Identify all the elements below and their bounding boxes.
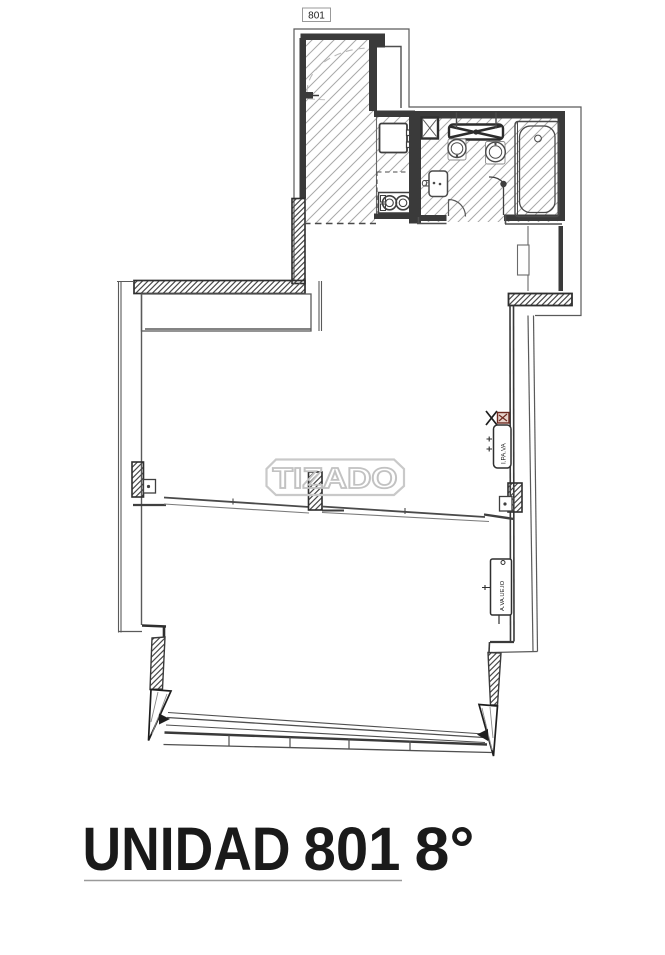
svg-text:I.PA.VA: I.PA.VA [501, 442, 508, 464]
svg-text:8°: 8° [415, 815, 475, 883]
svg-text:801: 801 [308, 11, 325, 22]
svg-text:TIZADO: TIZADO [273, 463, 398, 495]
svg-text:A.VA.UE.IO: A.VA.UE.IO [500, 580, 506, 611]
svg-text:UNIDAD: UNIDAD [83, 815, 291, 883]
svg-text:801: 801 [304, 815, 401, 883]
